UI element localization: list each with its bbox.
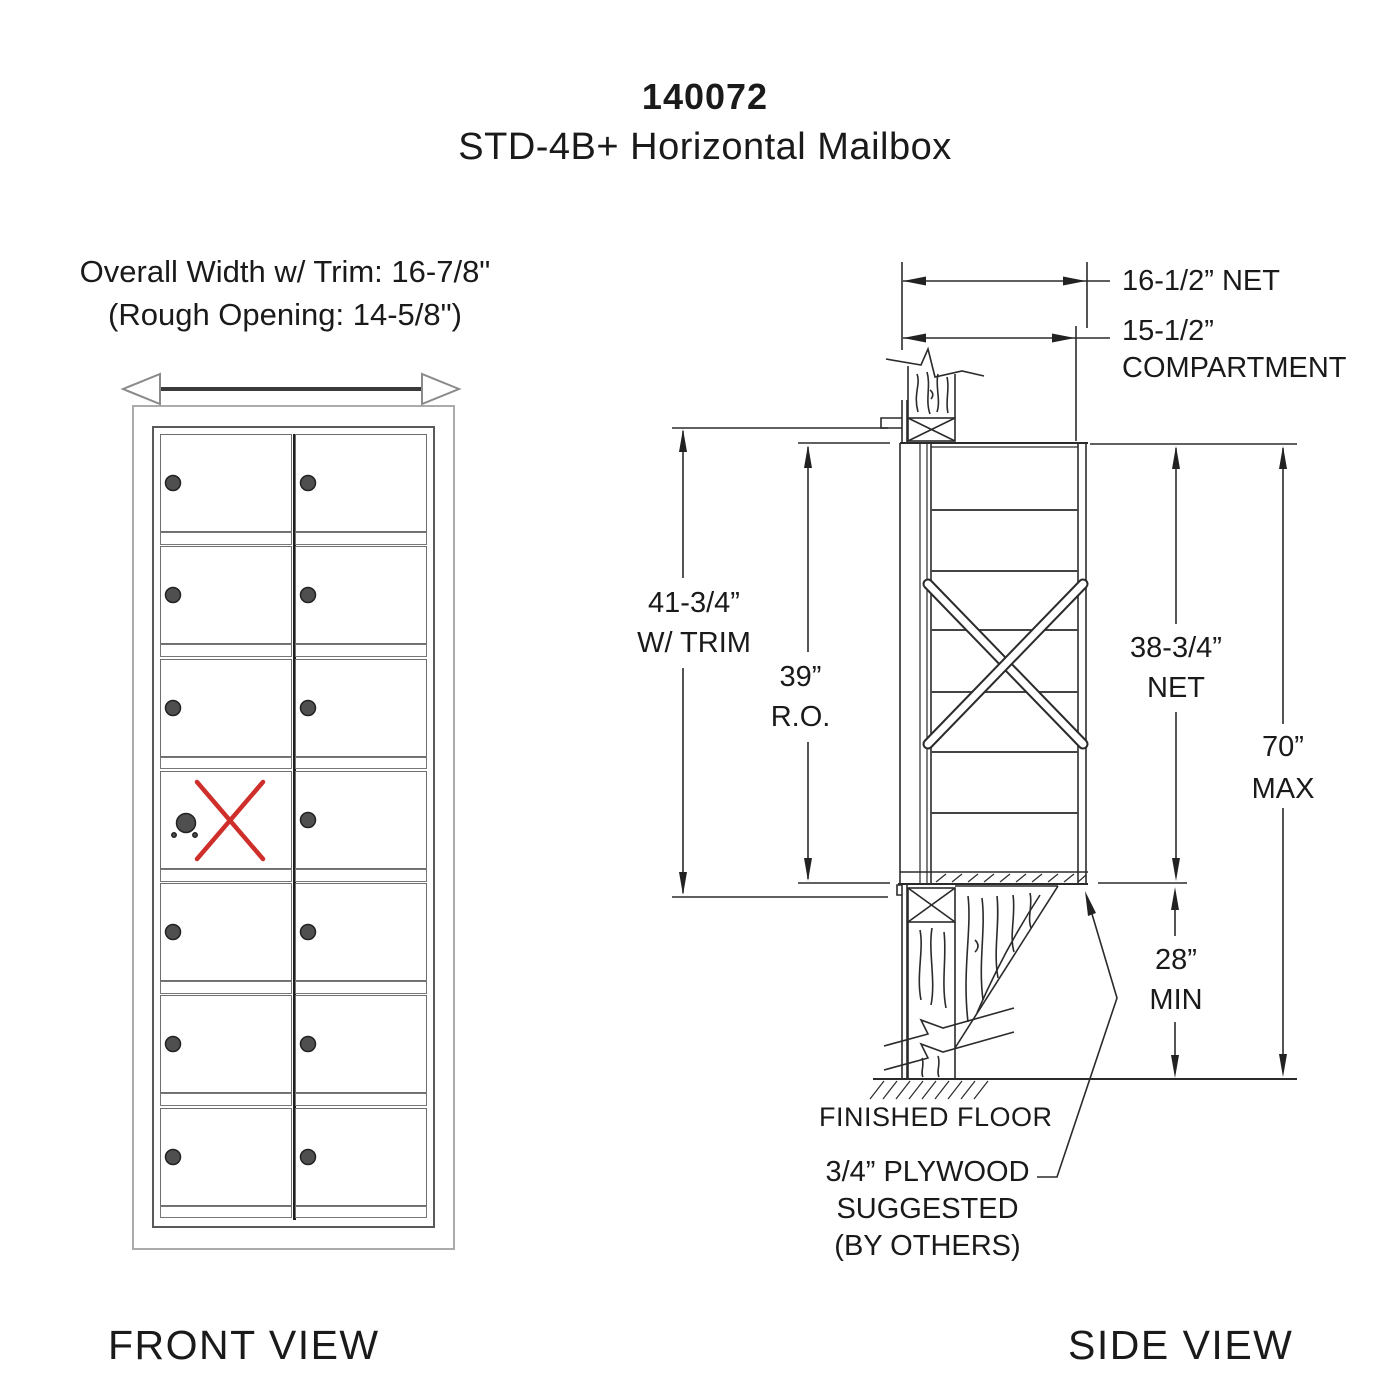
plywood-support: [955, 886, 1058, 1048]
bottom-panel-hatch: [936, 874, 1086, 882]
cabinet-section: [898, 443, 1088, 884]
width-double-arrow-icon: [123, 374, 459, 404]
plywood-leader-line: [1037, 891, 1117, 1177]
wall-stud-top: [881, 349, 984, 443]
x-brace: [928, 584, 1083, 744]
dimension-lines: [672, 262, 1297, 1078]
drawing-linework: [0, 0, 1400, 1400]
wall-stud-bottom: [884, 884, 1014, 1078]
